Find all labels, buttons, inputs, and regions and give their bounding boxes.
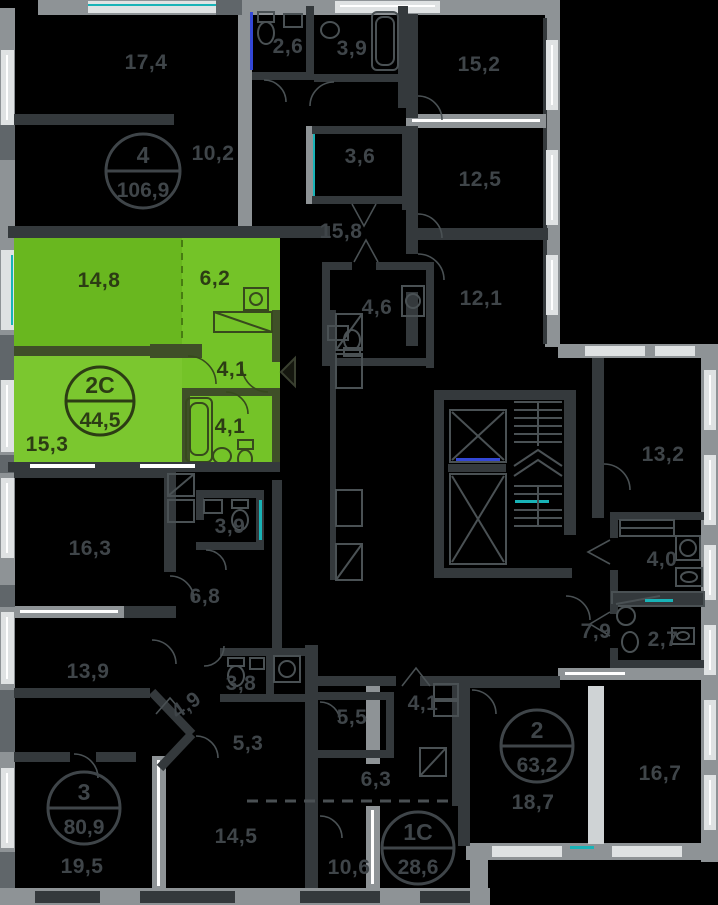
room-area-label: 3,6 xyxy=(345,145,376,168)
badge-number: 3 xyxy=(78,779,91,805)
badge-number: 4 xyxy=(137,142,150,168)
badge-number: 1С xyxy=(403,819,432,845)
room-area-label: 15,3 xyxy=(26,433,69,456)
room-area-label: 13,2 xyxy=(642,443,685,466)
room-area-label: 5,5 xyxy=(337,706,368,729)
room-area-label: 2,7 xyxy=(648,628,679,651)
floor-plan-svg: 17,410,22,63,915,83,615,212,512,14,614,8… xyxy=(0,0,718,905)
apartment-badge-1С[interactable]: 1С28,6 xyxy=(382,812,454,884)
apartment-badge-2[interactable]: 263,2 xyxy=(501,710,573,782)
room-area-label: 15,2 xyxy=(458,53,501,76)
apartment-badge-3[interactable]: 380,9 xyxy=(48,772,120,844)
room-area-label: 3,9 xyxy=(215,515,246,538)
badge-area: 28,6 xyxy=(398,856,439,879)
room-area-label: 3,8 xyxy=(226,672,257,695)
room-area-label: 4,1 xyxy=(408,692,439,715)
badge-area: 106,9 xyxy=(117,179,170,202)
floor-plan-stage: 17,410,22,63,915,83,615,212,512,14,614,8… xyxy=(0,0,718,905)
room-area-label: 15,8 xyxy=(320,220,363,243)
room-area-label: 6,2 xyxy=(200,267,231,290)
room-area-label: 4,0 xyxy=(647,548,678,571)
room-area-label: 4,1 xyxy=(215,415,246,438)
room-area-label: 16,7 xyxy=(639,762,682,785)
room-area-label: 17,4 xyxy=(125,51,168,74)
room-area-label: 14,5 xyxy=(215,825,258,848)
apartment-badge-4[interactable]: 4106,9 xyxy=(106,134,180,208)
room-area-label: 2,6 xyxy=(273,35,304,58)
room-area-label: 6,8 xyxy=(190,585,221,608)
room-area-label: 5,3 xyxy=(233,732,264,755)
room-area-label: 3,9 xyxy=(337,37,368,60)
apartment-badge-2С[interactable]: 2С44,5 xyxy=(66,367,134,435)
room-area-label: 10,6 xyxy=(328,856,371,879)
badge-area: 63,2 xyxy=(517,754,558,777)
badge-number: 2С xyxy=(85,372,114,398)
room-area-label: 14,8 xyxy=(78,269,121,292)
room-area-label: 12,1 xyxy=(460,287,503,310)
room-area-label: 16,3 xyxy=(69,537,112,560)
room-area-label: 19,5 xyxy=(61,855,104,878)
badge-area: 44,5 xyxy=(80,409,121,432)
room-area-label: 6,3 xyxy=(361,768,392,791)
room-area-label: 10,2 xyxy=(192,142,235,165)
room-area-label: 13,9 xyxy=(67,660,110,683)
room-area-label: 7,9 xyxy=(581,620,612,643)
badge-number: 2 xyxy=(531,717,544,743)
room-area-label: 18,7 xyxy=(512,791,555,814)
room-area-label: 4,1 xyxy=(217,358,248,381)
room-area-label: 4,6 xyxy=(362,296,393,319)
room-area-label: 12,5 xyxy=(459,168,502,191)
badge-area: 80,9 xyxy=(64,816,105,839)
